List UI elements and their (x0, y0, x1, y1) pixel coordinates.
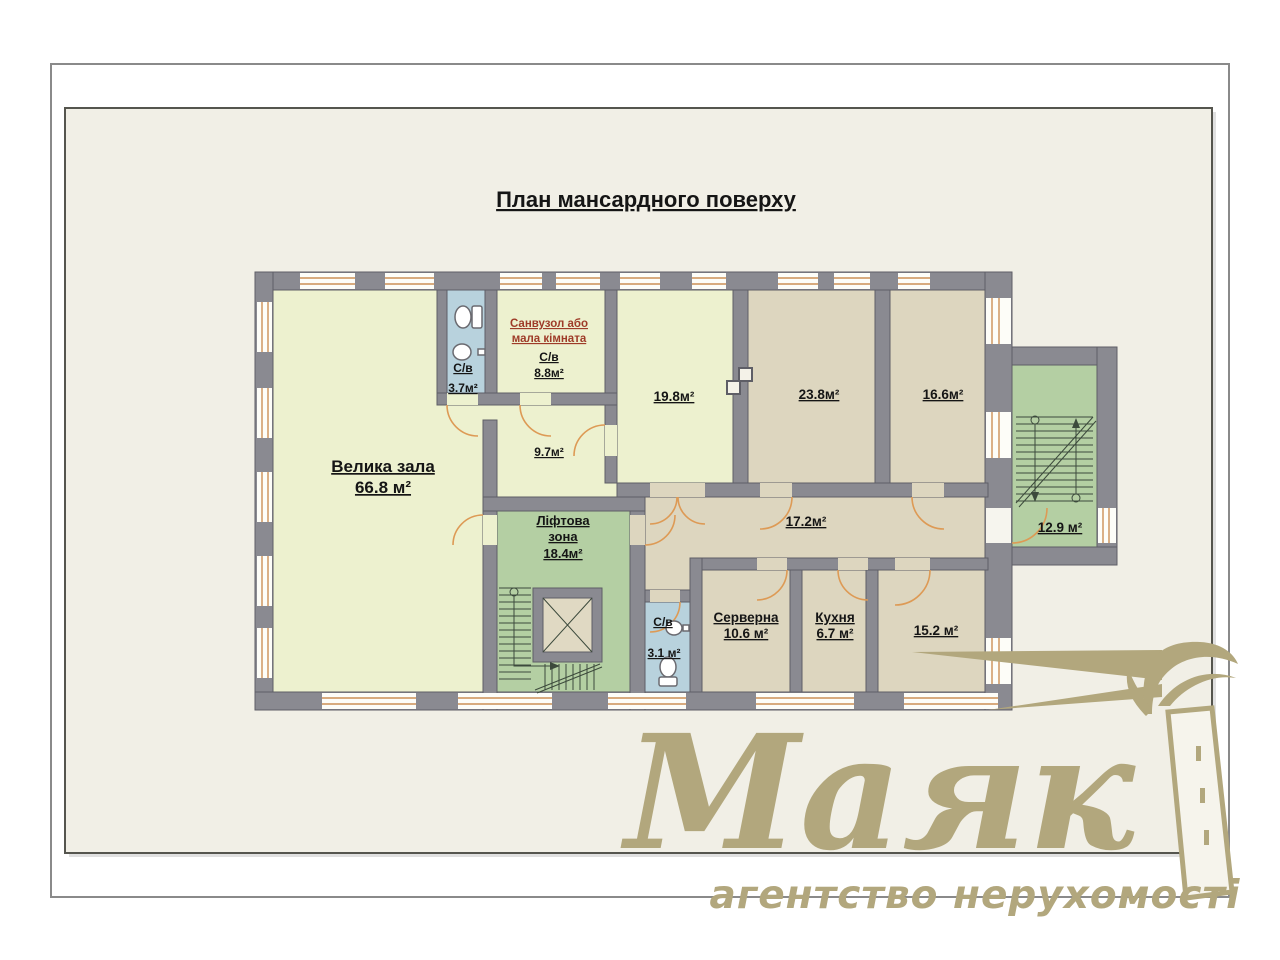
room-label-wc-bottom: С/в (653, 615, 672, 629)
watermark-brand: Маяк (620, 701, 1136, 886)
room-note1-san: Санвузол або (510, 318, 588, 330)
room-area-9-7: 9.7м² (534, 445, 564, 459)
room-label-server: Серверна (713, 610, 779, 625)
room-area-stairs: 12.9 м² (1038, 520, 1083, 535)
floor-plan-document: План мансардного поверху (0, 0, 1280, 960)
room-area-wc-bottom: 3.1 м² (648, 646, 681, 660)
lighthouse-window (1204, 830, 1209, 845)
room-area-san: 8.8м² (534, 366, 564, 380)
corridor-vestibule-floor (645, 558, 690, 590)
room-area-16-6: 16.6м² (923, 387, 964, 402)
room-label-san: С/в (539, 350, 558, 364)
lighthouse-window (1200, 788, 1205, 803)
elevator-icon (533, 588, 602, 662)
room-area-15-2: 15.2 м² (914, 623, 959, 638)
floor-plan: Велика зала 66.8 м² С/в 3.7м² Санвузол а… (255, 272, 1117, 710)
toilet-icon (455, 306, 482, 328)
room-area-corridor: 17.2м² (786, 514, 827, 529)
room-label-kitchen: Кухня (815, 610, 854, 625)
room-label-hall: Велика зала (331, 457, 435, 476)
room-note2-san: мала кімната (512, 333, 587, 345)
room-area-hall: 66.8 м² (355, 478, 411, 497)
room-19-8-floor (617, 290, 733, 483)
room-area-kitchen: 6.7 м² (817, 626, 855, 641)
room-area-wc-top: 3.7м² (448, 381, 478, 395)
room-label2-lift: зона (548, 529, 578, 544)
room-area-19-8: 19.8м² (654, 389, 695, 404)
room-area-23-8: 23.8м² (799, 387, 840, 402)
watermark-tagline: агентство нерухомості (710, 873, 1241, 918)
lighthouse-window (1196, 746, 1201, 761)
room-label-wc-top: С/в (453, 361, 472, 375)
room-area-lift: 18.4м² (543, 546, 583, 561)
room-area-server: 10.6 м² (724, 626, 769, 641)
room-label1-lift: Ліфтова (536, 513, 590, 528)
page-title: План мансардного поверху (496, 187, 797, 212)
toilet-icon-2 (659, 657, 677, 686)
